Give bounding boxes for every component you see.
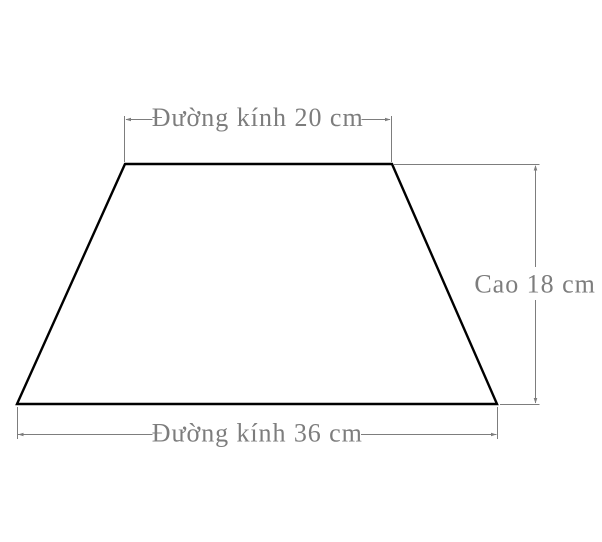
svg-text:Cao 18 cm: Cao 18 cm [474, 270, 595, 299]
svg-text:Đường kính 20 cm: Đường kính 20 cm [152, 103, 363, 132]
svg-text:Đường kính 36 cm: Đường kính 36 cm [152, 418, 362, 447]
